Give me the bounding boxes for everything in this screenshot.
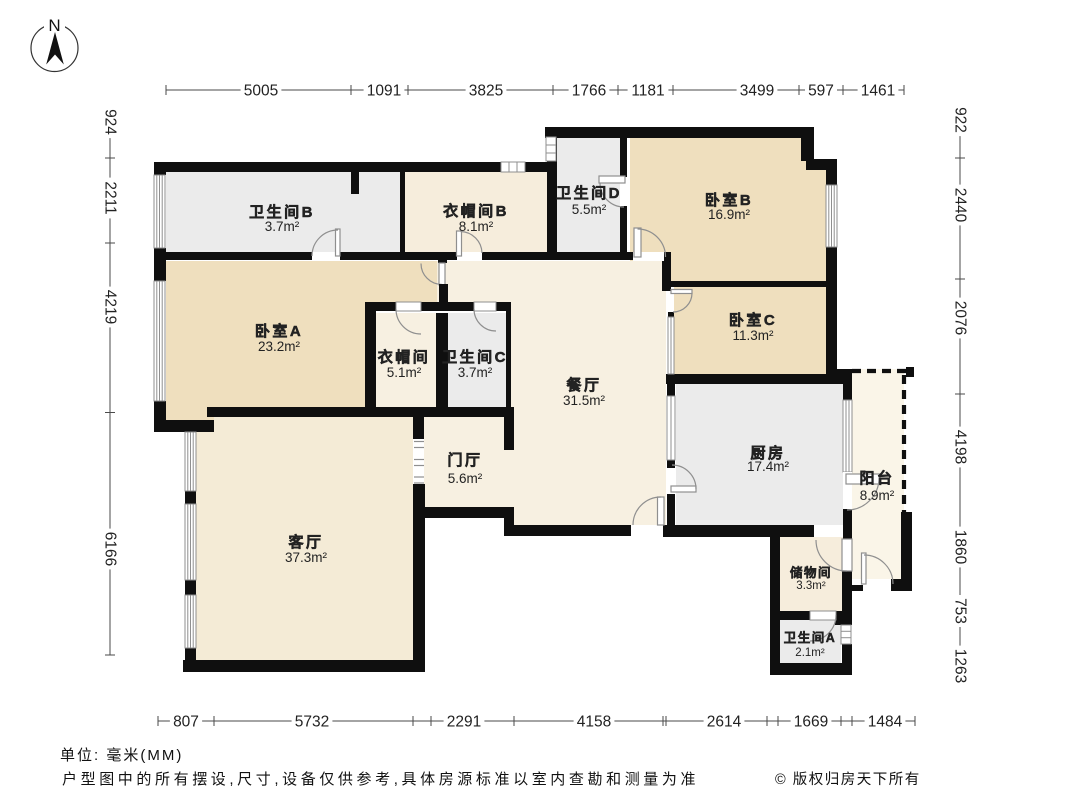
svg-text:11.3m²: 11.3m² [732,328,774,343]
svg-text:卫生间A: 卫生间A [784,630,837,645]
svg-text:1181: 1181 [631,83,664,100]
svg-text:753: 753 [952,598,969,624]
svg-text:阳台: 阳台 [859,469,894,487]
svg-text:597: 597 [808,83,834,100]
svg-text:2.1m²: 2.1m² [795,647,825,659]
svg-text:卫生间D: 卫生间D [556,184,622,202]
svg-text:2440: 2440 [952,188,969,223]
svg-text:储物间: 储物间 [789,565,832,580]
svg-text:单位: 毫米(MM): 单位: 毫米(MM) [60,746,183,764]
svg-text:3825: 3825 [469,83,503,100]
svg-text:807: 807 [173,714,199,731]
svg-text:4198: 4198 [952,430,969,464]
svg-text:户型图中的所有摆设,尺寸,设备仅供参考,具体房源标准以室内查: 户型图中的所有摆设,尺寸,设备仅供参考,具体房源标准以室内查勘和测量为准 [62,771,699,788]
svg-text:客厅: 客厅 [287,533,323,551]
svg-text:23.2m²: 23.2m² [258,339,301,354]
svg-text:卧室A: 卧室A [255,322,303,340]
svg-text:© 版权归房天下所有: © 版权归房天下所有 [775,771,921,788]
svg-text:衣帽间: 衣帽间 [378,348,431,366]
svg-text:5.6m²: 5.6m² [448,471,483,486]
svg-text:2211: 2211 [102,181,119,214]
svg-text:1091: 1091 [367,83,401,100]
svg-text:3.3m²: 3.3m² [796,580,826,592]
svg-text:5.1m²: 5.1m² [387,365,422,380]
svg-text:1766: 1766 [572,83,606,100]
svg-text:N: N [48,16,60,35]
svg-text:37.3m²: 37.3m² [285,550,328,565]
svg-text:4158: 4158 [577,714,611,731]
svg-text:卫生间C: 卫生间C [442,348,508,366]
svg-text:6166: 6166 [102,532,119,566]
svg-text:1263: 1263 [952,649,969,683]
svg-text:31.5m²: 31.5m² [563,393,606,408]
svg-text:922: 922 [952,107,969,133]
svg-text:17.4m²: 17.4m² [747,459,790,474]
svg-text:1461: 1461 [861,83,895,100]
svg-text:8.1m²: 8.1m² [459,219,494,234]
svg-text:8.9m²: 8.9m² [860,488,895,503]
svg-text:5005: 5005 [244,83,278,100]
svg-text:2076: 2076 [952,301,969,335]
svg-text:衣帽间B: 衣帽间B [443,202,509,220]
svg-text:餐厅: 餐厅 [566,376,601,394]
svg-text:1669: 1669 [794,714,828,731]
svg-text:1484: 1484 [868,714,903,731]
svg-text:924: 924 [102,109,119,135]
svg-text:5.5m²: 5.5m² [572,202,607,217]
svg-text:1860: 1860 [952,530,969,565]
svg-text:3.7m²: 3.7m² [458,365,493,380]
svg-text:3499: 3499 [740,83,774,100]
svg-text:5732: 5732 [295,714,329,731]
svg-text:2614: 2614 [707,714,742,731]
svg-text:卧室C: 卧室C [729,311,777,329]
svg-text:2291: 2291 [447,714,481,731]
svg-text:门厅: 门厅 [447,451,482,469]
svg-text:3.7m²: 3.7m² [265,219,300,234]
svg-text:16.9m²: 16.9m² [708,207,751,222]
svg-text:4219: 4219 [102,290,119,324]
